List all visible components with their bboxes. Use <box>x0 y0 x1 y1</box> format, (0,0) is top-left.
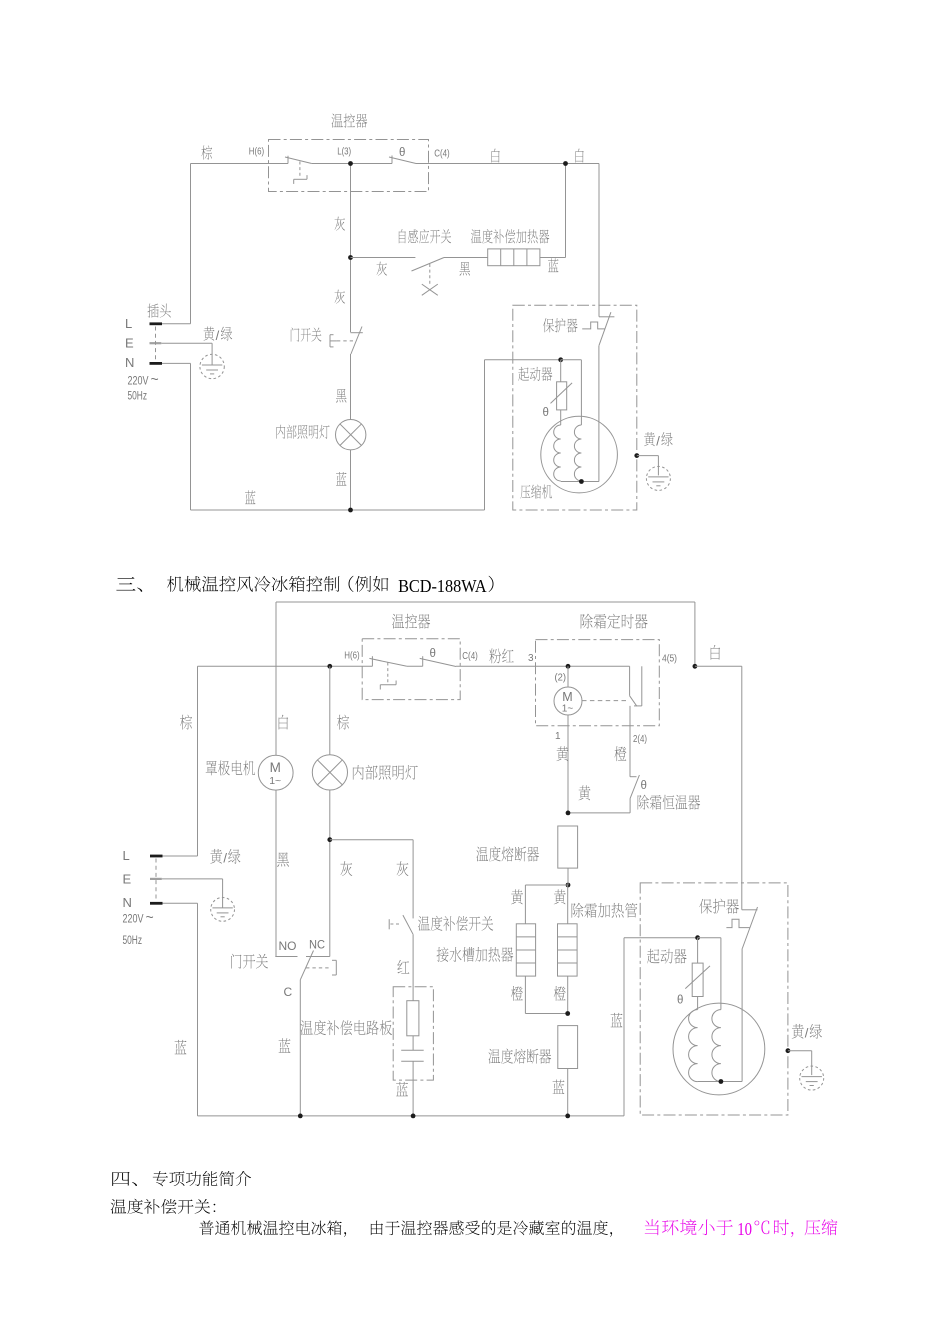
svg-text:θ: θ <box>430 648 436 660</box>
svg-text:/: / <box>656 434 660 449</box>
svg-text:H(6): H(6) <box>344 651 359 662</box>
svg-text:2(4): 2(4) <box>633 734 647 745</box>
svg-text:L: L <box>123 848 130 863</box>
svg-text:BCD-188WA: BCD-188WA <box>398 576 487 596</box>
svg-text:C: C <box>284 985 293 999</box>
svg-text:NO: NO <box>279 939 297 953</box>
svg-text:θ: θ <box>543 407 549 419</box>
svg-text:H(6): H(6) <box>249 147 264 158</box>
svg-text:1~: 1~ <box>562 704 574 715</box>
svg-text:(2): (2) <box>555 673 567 684</box>
svg-text:~: ~ <box>151 371 159 387</box>
svg-text:1: 1 <box>555 731 561 742</box>
svg-text:M: M <box>270 760 281 775</box>
svg-text:10: 10 <box>737 1219 752 1239</box>
svg-text:~: ~ <box>146 909 154 925</box>
svg-text:50Hz: 50Hz <box>128 391 148 403</box>
svg-text:E: E <box>125 336 134 351</box>
svg-text:/: / <box>216 328 220 343</box>
svg-text:/: / <box>223 851 227 866</box>
svg-text:θ: θ <box>677 995 683 1007</box>
svg-text:E: E <box>123 872 132 887</box>
svg-text:θ: θ <box>641 780 647 792</box>
svg-text:4(5): 4(5) <box>662 654 677 665</box>
svg-text:N: N <box>123 895 132 910</box>
svg-text:50Hz: 50Hz <box>123 935 143 947</box>
svg-text:3: 3 <box>528 653 534 664</box>
svg-text:220V: 220V <box>123 914 144 926</box>
svg-text:M: M <box>562 690 572 704</box>
svg-text:L(3): L(3) <box>337 147 351 158</box>
svg-text:L: L <box>125 316 132 331</box>
svg-text:/: / <box>805 1026 809 1041</box>
svg-text:1~: 1~ <box>269 775 281 787</box>
svg-text:N: N <box>125 355 134 370</box>
svg-text:C(4): C(4) <box>434 149 450 160</box>
svg-text:θ: θ <box>399 147 405 159</box>
svg-text:C(4): C(4) <box>462 651 478 662</box>
svg-text:NC: NC <box>309 938 325 952</box>
svg-text:220V: 220V <box>128 376 149 388</box>
